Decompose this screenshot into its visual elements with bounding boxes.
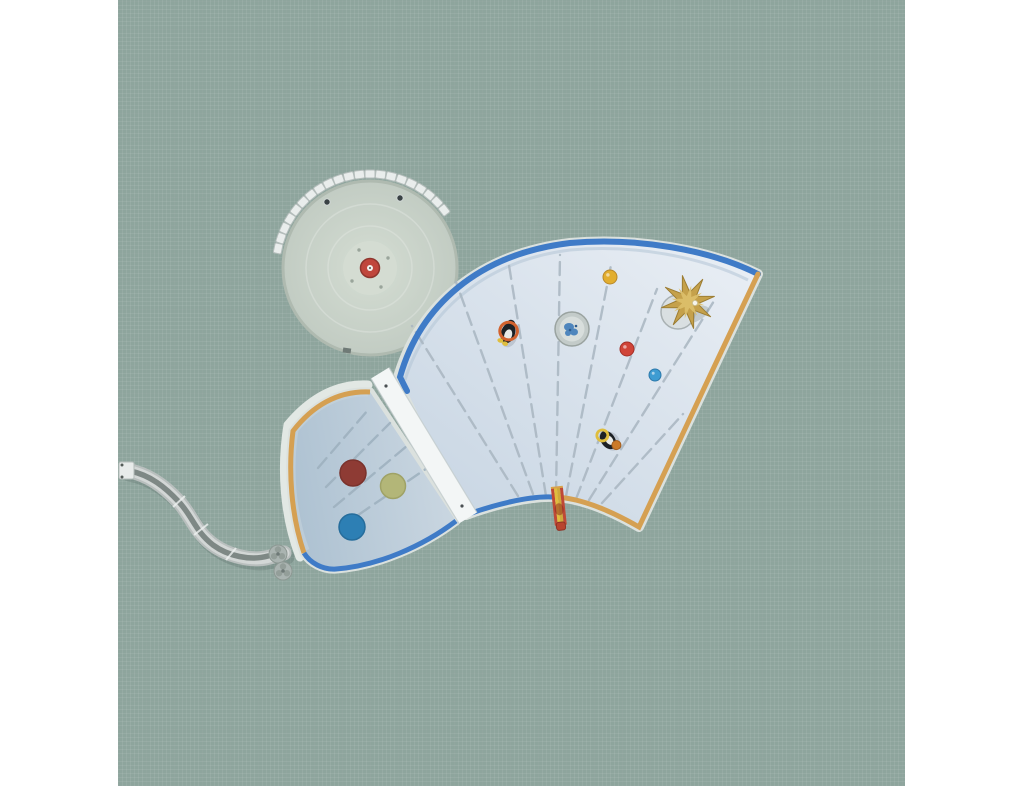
mini-slide-tip bbox=[556, 522, 566, 531]
clover-center bbox=[276, 552, 280, 556]
carousel-seat bbox=[395, 174, 407, 185]
screenshot bbox=[0, 0, 1024, 786]
carousel-seat bbox=[365, 170, 375, 178]
ball-highlight bbox=[652, 372, 655, 375]
speaker-dot bbox=[324, 199, 330, 205]
mound-dot bbox=[350, 279, 353, 282]
carousel-center-pin bbox=[369, 267, 371, 269]
carousel-seat bbox=[354, 170, 365, 179]
carousel-seat bbox=[375, 170, 386, 179]
clover bbox=[274, 562, 292, 580]
platform-bolt bbox=[121, 476, 124, 479]
carousel-seat bbox=[343, 171, 355, 181]
fountain-dot bbox=[569, 329, 572, 332]
ball-highlight bbox=[606, 273, 610, 277]
mound-dot bbox=[386, 256, 389, 259]
bridge-bolt bbox=[460, 504, 463, 507]
winding-water-slide bbox=[119, 462, 287, 563]
carousel-seat bbox=[276, 232, 287, 244]
aerial-photo bbox=[118, 0, 905, 786]
palm-center-dot bbox=[692, 300, 697, 305]
fountain-feature bbox=[555, 312, 589, 346]
photo-svg bbox=[118, 0, 905, 786]
fountain-dot bbox=[575, 325, 578, 328]
yellow-ball bbox=[603, 270, 617, 284]
mound-dot bbox=[357, 248, 360, 251]
clover bbox=[269, 545, 287, 563]
maroon-disc bbox=[340, 460, 366, 486]
clover-lobe bbox=[275, 546, 281, 552]
olive-disc bbox=[381, 474, 406, 499]
bridge-bolt bbox=[384, 384, 387, 387]
red-ball bbox=[620, 342, 634, 356]
carousel-seat bbox=[273, 243, 283, 254]
ball-highlight bbox=[623, 345, 627, 349]
mound-dot bbox=[379, 285, 382, 288]
platform-bolt bbox=[121, 464, 124, 467]
blue-disc bbox=[339, 514, 365, 540]
speaker-dot bbox=[397, 195, 403, 201]
clover-center bbox=[281, 569, 285, 573]
blue-ball bbox=[649, 369, 661, 381]
clover-lobe bbox=[280, 563, 286, 569]
carousel-seat bbox=[385, 171, 397, 181]
